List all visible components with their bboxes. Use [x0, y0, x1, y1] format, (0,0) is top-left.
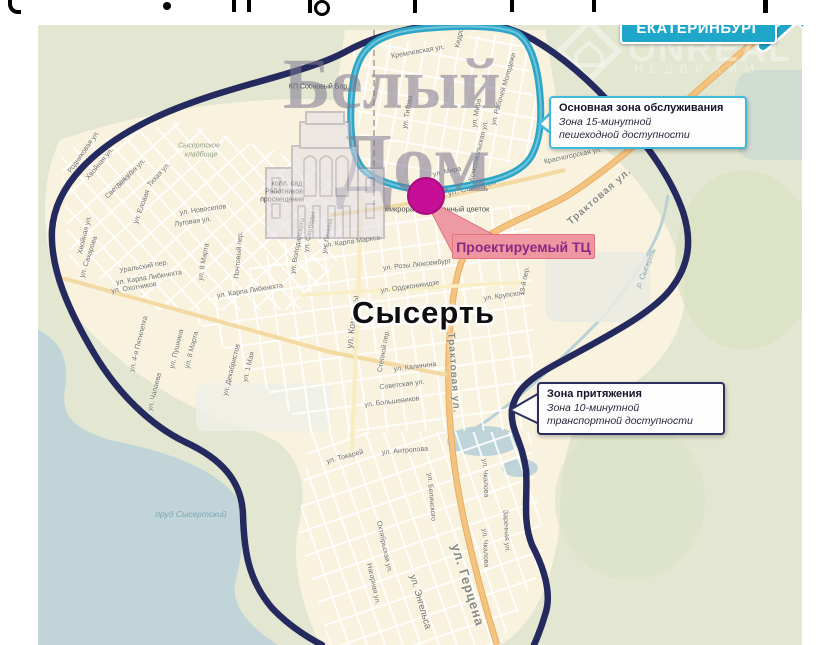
street-label: 13-й пер. [519, 266, 531, 296]
place-label: колл. сад [272, 181, 302, 188]
cropped-heading-strip [0, 0, 828, 25]
walk-zone-callout-line1: Зона 15-минутной [559, 116, 737, 129]
street-label: ул. Декабристов [222, 343, 242, 396]
place-label: Работников [265, 189, 303, 196]
street-label: ул. Титова [402, 95, 415, 129]
street-label: ул. Энгельса [408, 574, 433, 631]
street-label: Почтовый пер. [233, 231, 244, 279]
street-label: ул. 1 Мая [242, 351, 256, 383]
street-label: ул. Антропова [382, 446, 429, 457]
street-label: ул. Карла Либкнехта [217, 282, 284, 299]
place-label: кладбище [185, 152, 218, 159]
street-label: ул. Чкалова [480, 528, 489, 567]
cropped-glyph [308, 0, 312, 13]
place-label: просвещения [260, 197, 304, 204]
project-label: Проектируемый ТЦ [452, 234, 595, 259]
street-label: ул. Чапаева [147, 372, 163, 412]
cropped-glyph [163, 2, 171, 10]
street-label: Красногорская ул. [543, 146, 602, 165]
street-label: ул. Рабочей Молодежи [490, 52, 517, 126]
cropped-glyph [510, 0, 514, 12]
cropped-glyph [763, 0, 768, 13]
walk-zone-inner [351, 26, 541, 190]
place-label: Сысертское [178, 143, 220, 150]
street-label: Трактовая ул. [566, 167, 634, 228]
street-label: Тихая ул. [146, 161, 171, 188]
drive-zone-callout: Зона притяжения Зона 10-минутной транспо… [537, 382, 725, 435]
street-label: ул. Еловая [133, 189, 152, 225]
place-label: КП Сосновый Бор [289, 84, 347, 91]
street-label: ул. Калинина [393, 361, 436, 373]
street-label: Октябрьская ул. [375, 520, 393, 573]
drive-zone-callout-line1: Зона 10-минутной [547, 402, 715, 415]
walk-zone-callout-title: Основная зона обслуживания [559, 102, 737, 116]
drive-zone-callout-line2: транспортной доступности [547, 415, 715, 428]
place-label: пруд Сысертский [155, 510, 226, 519]
street-label: Кремлевская ул. [391, 44, 445, 60]
project-site-marker [407, 177, 445, 215]
street-label: Степной пер. [377, 329, 391, 373]
map-screenshot: Кремлевская ул.Кедровая ул.ул. Титоваул.… [0, 0, 828, 645]
street-label: ул. Новоселов [179, 203, 226, 216]
walk-zone-callout-line2: пешеходной доступности [559, 129, 737, 142]
street-label: Трактовая ул. [445, 332, 461, 414]
walk-zone-outline [351, 26, 541, 190]
street-label: Комсомольская ул. [468, 120, 490, 182]
place-label: р. Сысерть [635, 247, 658, 288]
city-name-label: Сысерть [352, 295, 495, 331]
street-label: ул. Чкалова [480, 458, 489, 497]
drive-zone-callout-title: Зона притяжения [547, 388, 715, 402]
agency-subtitle-watermark: НЕДВИЖИМ [634, 62, 761, 76]
street-label: Луговая ул. [174, 216, 212, 228]
cropped-glyph [592, 0, 596, 12]
street-label: Советская ул. [379, 379, 425, 391]
street-label: ул. Карла Маркса [323, 235, 381, 250]
walk-zone-callout: Основная зона обслуживания Зона 15-минут… [549, 96, 747, 149]
street-label: Заречная ул. [501, 510, 510, 553]
street-label: ул. Свободы [303, 211, 317, 252]
street-label: ул. 8 Марта [197, 243, 210, 281]
street-label: ул. Пушкина [169, 329, 186, 370]
street-label: Хвойная ул. [85, 147, 115, 181]
street-label: Светлая ул. [104, 168, 136, 201]
cropped-glyph [247, 0, 251, 12]
street-label: Нагорная ул. [365, 563, 381, 606]
street-label: ул. Белинского [425, 473, 436, 522]
street-label: ул. 8 Марта [184, 331, 200, 369]
street-label: ул. 4-я Пятилетка [129, 315, 150, 372]
street-label: ул. Мира [432, 166, 462, 179]
street-label: ул. Орджоникидзе [380, 279, 439, 294]
cropped-glyph [232, 0, 236, 12]
street-label: ул. Токарей [326, 449, 364, 466]
cropped-glyph [8, 0, 21, 14]
street-label: ул. Большевиков [364, 395, 420, 409]
street-label: ул. Розы Люксембург [383, 258, 452, 272]
cropped-glyph [413, 0, 417, 13]
cropped-glyph [314, 0, 330, 16]
